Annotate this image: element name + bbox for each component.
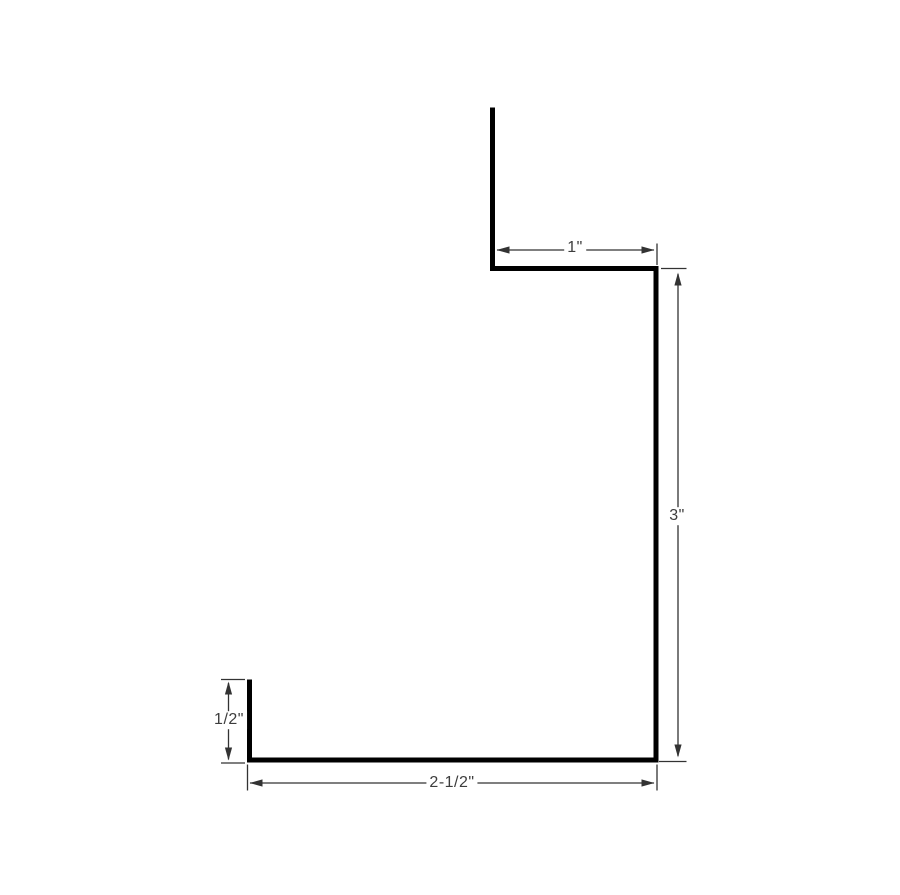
arrowhead-down-icon: [674, 745, 681, 758]
arrowhead-up-icon: [674, 273, 681, 286]
arrowhead-up-icon: [225, 682, 232, 695]
arrowhead-right-icon: [642, 779, 655, 786]
dim-label-left-leg-height: 1/2": [211, 711, 247, 729]
profile-outline: [250, 108, 657, 761]
drawing-canvas: 1" 3" 1/2" 2-1/2": [0, 0, 900, 895]
dim-label-right-height: 3": [666, 507, 688, 525]
arrowhead-down-icon: [225, 748, 232, 761]
arrowhead-left-icon: [250, 779, 263, 786]
arrowhead-right-icon: [642, 246, 655, 253]
profile-drawing: [0, 0, 900, 895]
dim-label-bottom-width: 2-1/2": [426, 774, 477, 792]
dim-label-top-width: 1": [564, 239, 586, 257]
arrowhead-left-icon: [497, 246, 510, 253]
